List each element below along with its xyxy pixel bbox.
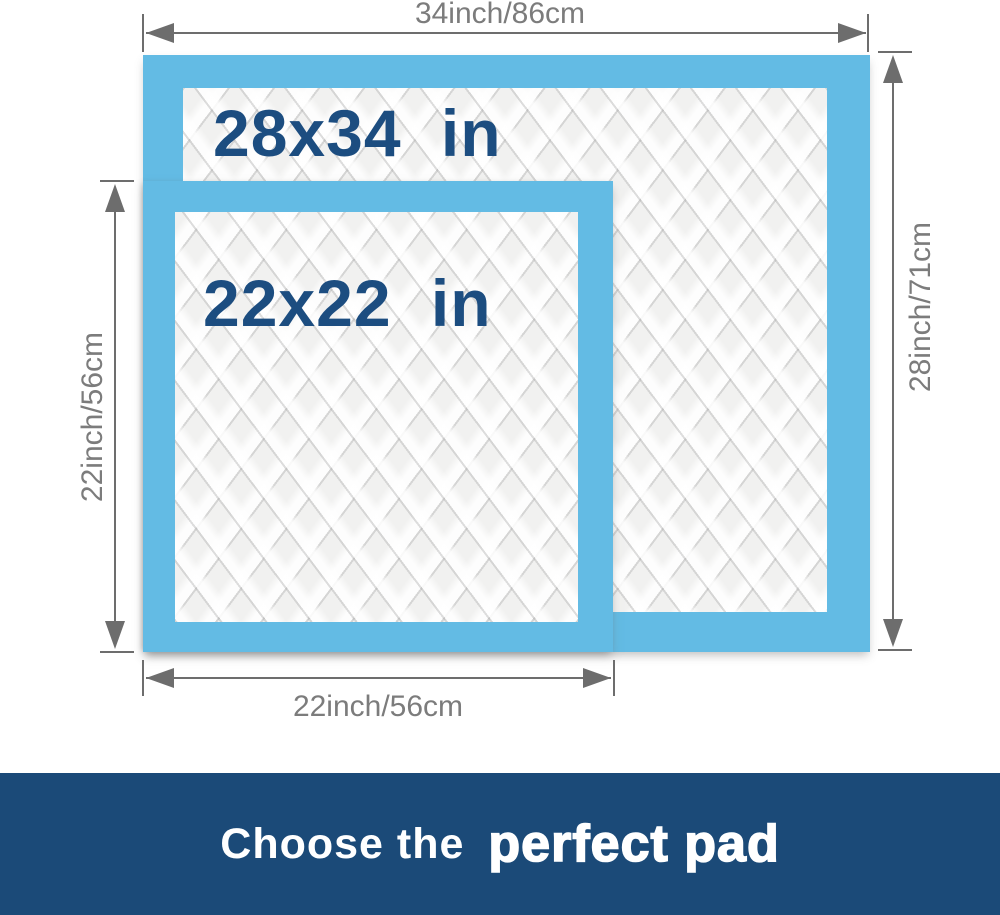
- dimension-line: [892, 58, 894, 644]
- top-width-dimension-label: 34inch/86cm: [350, 0, 650, 31]
- pad-size-comparison-diagram: 28x34 in 22x22 in 34inch/86cm 22inch/56c…: [0, 0, 1000, 915]
- dimension-extension-tick: [100, 180, 134, 182]
- dimension-extension-tick: [142, 660, 144, 696]
- dimension-line: [146, 32, 866, 34]
- left-height-dimension-label: 22inch/56cm: [76, 267, 110, 567]
- arrowhead-left-icon: [146, 668, 174, 688]
- large-pad-size-label: 28x34 in: [213, 100, 502, 166]
- dimension-extension-tick: [878, 51, 912, 53]
- arrowhead-left-icon: [146, 23, 174, 43]
- bottom-width-dimension-label: 22inch/56cm: [228, 690, 528, 724]
- arrowhead-right-icon: [583, 668, 611, 688]
- arrowhead-up-icon: [883, 55, 903, 83]
- arrowhead-down-icon: [105, 621, 125, 649]
- banner-prefix-text: Choose the: [220, 820, 464, 869]
- dimension-extension-tick: [878, 649, 912, 651]
- small-pad-quilted-surface: 22x22 in: [175, 212, 578, 622]
- small-pad: 22x22 in: [143, 181, 613, 652]
- right-height-dimension-label: 28inch/71cm: [904, 157, 938, 457]
- dimension-extension-tick: [613, 660, 615, 696]
- dimension-extension-tick: [867, 14, 869, 52]
- banner-highlight-text: perfect pad: [488, 814, 779, 874]
- small-pad-size-label: 22x22 in: [203, 270, 492, 336]
- arrowhead-right-icon: [838, 23, 866, 43]
- dimension-line: [146, 677, 611, 679]
- dimension-line: [114, 188, 116, 646]
- dimension-extension-tick: [100, 651, 134, 653]
- bottom-banner: Choose the perfect pad: [0, 773, 1000, 915]
- arrowhead-up-icon: [105, 184, 125, 212]
- arrowhead-down-icon: [883, 619, 903, 647]
- dimension-extension-tick: [142, 14, 144, 52]
